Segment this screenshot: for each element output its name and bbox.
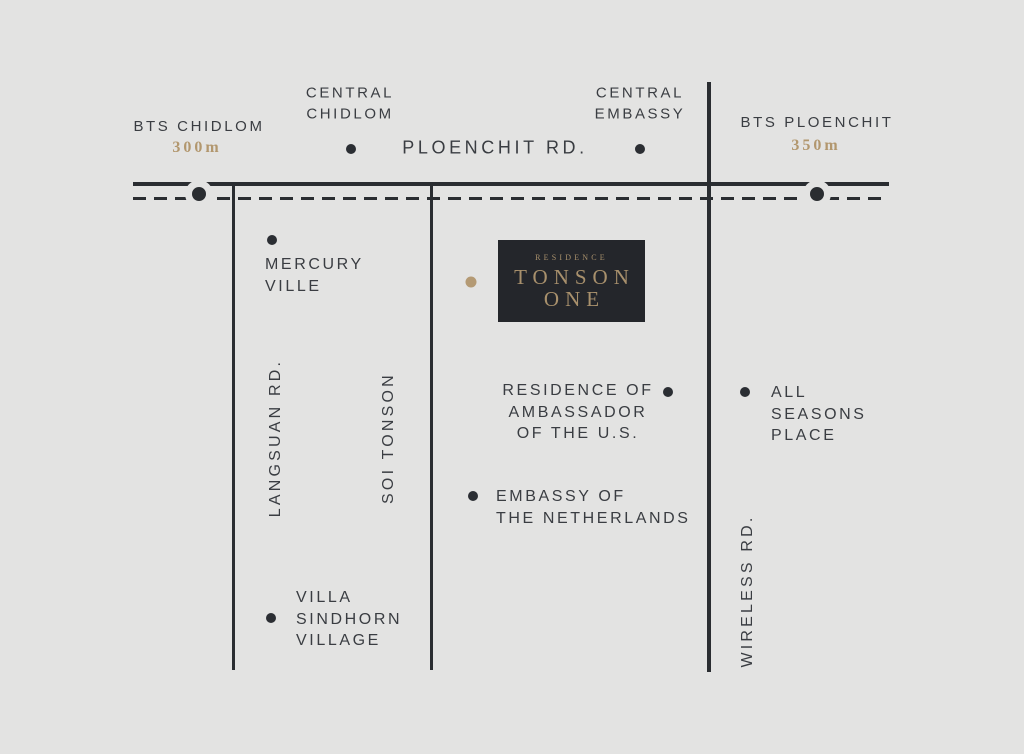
us-ambassador-residence-dot-icon [663, 387, 673, 397]
langsuan-road-line [232, 184, 235, 670]
ploenchit-road-dashed-line [133, 197, 889, 200]
villa-sindhorn-label: VILLA SINDHORN VILLAGE [296, 587, 402, 652]
langsuan-road-label: LANGSUAN RD. [267, 359, 285, 517]
bts-ploenchit-station-icon [810, 187, 824, 201]
bts-chidlom-label: BTS CHIDLOM [133, 117, 264, 138]
logo-name-line1: TONSON [508, 266, 635, 288]
ploenchit-road-label: PLOENCHIT RD. [402, 137, 588, 159]
tonson-one-location-map: BTS CHIDLOM 300m CENTRAL CHIDLOM PLOENCH… [0, 0, 1024, 754]
tonson-one-logo: RESIDENCE TONSON ONE [498, 240, 645, 322]
villa-sindhorn-dot-icon [266, 613, 276, 623]
ploenchit-road-line [133, 182, 889, 186]
logo-residence-text: RESIDENCE [535, 253, 608, 262]
tonson-one-location-dot-icon [466, 277, 477, 288]
bts-chidlom-distance: 300m [172, 139, 221, 157]
central-chidlom-dot-icon [346, 144, 356, 154]
wireless-road-label: WIRELESS RD. [739, 514, 757, 667]
mercury-ville-dot-icon [267, 235, 277, 245]
central-chidlom-label: CENTRAL CHIDLOM [306, 84, 394, 125]
all-seasons-place-dot-icon [740, 387, 750, 397]
soi-tonson-road-label: SOI TONSON [380, 372, 398, 504]
netherlands-embassy-label: EMBASSY OF THE NETHERLANDS [496, 486, 691, 529]
wireless-road-line [707, 82, 711, 672]
soi-tonson-road-line [430, 184, 433, 670]
central-embassy-dot-icon [635, 144, 645, 154]
logo-name-line2: ONE [538, 288, 605, 310]
us-ambassador-residence-label: RESIDENCE OF AMBASSADOR OF THE U.S. [502, 380, 653, 445]
bts-ploenchit-label: BTS PLOENCHIT [741, 113, 894, 134]
all-seasons-place-label: ALL SEASONS PLACE [771, 382, 867, 447]
bts-chidlom-station-icon [192, 187, 206, 201]
central-embassy-label: CENTRAL EMBASSY [595, 84, 686, 125]
netherlands-embassy-dot-icon [468, 491, 478, 501]
mercury-ville-label: MERCURY VILLE [265, 254, 364, 297]
bts-ploenchit-distance: 350m [791, 137, 840, 155]
